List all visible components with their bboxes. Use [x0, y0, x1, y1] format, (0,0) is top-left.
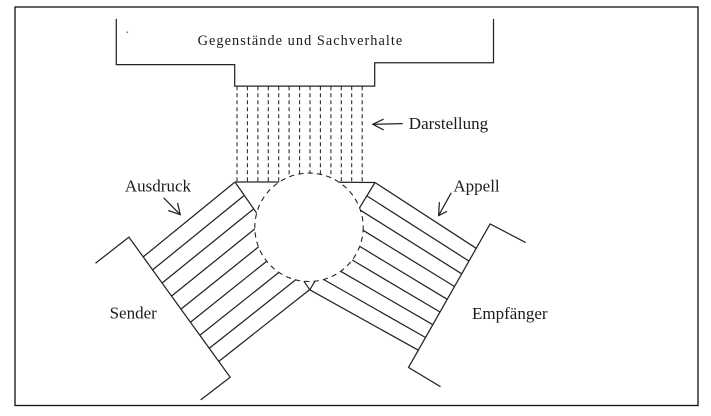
svg-text:Ausdruck: Ausdruck [125, 176, 192, 195]
svg-text:Gegenstände und Sachverhalte: Gegenstände und Sachverhalte [198, 33, 404, 49]
svg-text:Appell: Appell [453, 176, 500, 195]
svg-text:Empfänger: Empfänger [472, 304, 548, 323]
svg-text:Darstellung: Darstellung [409, 114, 489, 133]
svg-text:Sender: Sender [110, 303, 158, 322]
